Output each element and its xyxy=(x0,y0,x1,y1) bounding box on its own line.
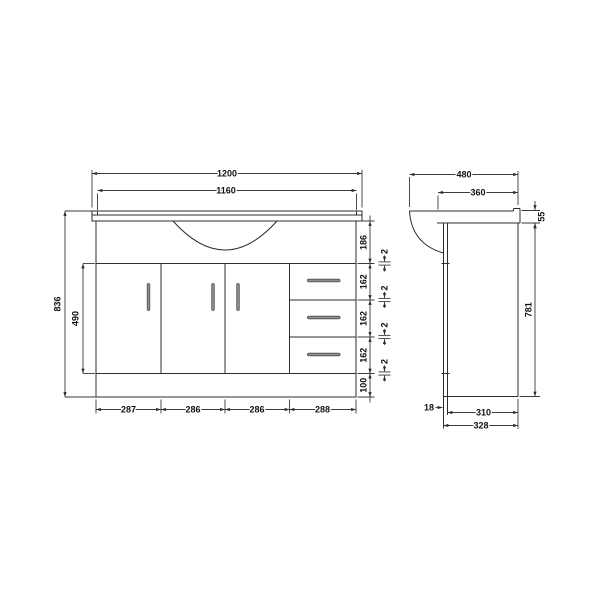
dim-label-cabinet-height: 781 xyxy=(524,302,534,317)
dim-label-countertop-width: 1200 xyxy=(217,169,237,179)
dim-gap-2mm: 2 2 2 2 xyxy=(379,249,391,382)
dim-front-right: 186 162 162 162 100 2 2 2 xyxy=(358,216,391,403)
dim-label-base-depth: 328 xyxy=(473,421,488,431)
door-handle-icon xyxy=(237,284,240,311)
dim-front-left: 836 490 xyxy=(53,211,97,397)
dim-label-worktop-height: 55 xyxy=(537,212,547,222)
dim-label-gap: 2 xyxy=(380,359,390,364)
technical-drawing: 1200 1160 836 490 xyxy=(0,0,602,602)
dim-label-gap: 2 xyxy=(380,322,390,327)
door-handle-icon xyxy=(212,284,215,311)
drawing-sheet: 1200 1160 836 490 xyxy=(0,0,602,602)
drawer-handle-icon xyxy=(308,353,341,356)
front-view: 1200 1160 836 490 xyxy=(53,169,391,415)
front-countertop xyxy=(92,211,362,221)
side-view: 480 360 55 781 18 310 328 xyxy=(410,170,547,431)
dim-label-drawer-2: 162 xyxy=(359,311,369,326)
dim-label-recess-depth: 310 xyxy=(476,408,491,418)
dim-label-top-rail: 186 xyxy=(359,235,369,250)
dim-label-gap: 2 xyxy=(380,285,390,290)
drawer-handle-icon xyxy=(308,279,341,282)
dim-label-total-height: 836 xyxy=(53,296,63,311)
dim-label-worktop-depth: 360 xyxy=(470,188,485,198)
dim-side-right: 55 781 xyxy=(520,201,547,397)
front-cabinet-body xyxy=(96,221,356,397)
dim-label-overall-depth: 480 xyxy=(456,170,471,180)
side-basin-curve xyxy=(410,211,444,253)
dim-side-bottom: 18 310 328 xyxy=(424,399,518,431)
dim-label-plinth: 100 xyxy=(359,378,369,393)
dim-label-panel-thickness: 18 xyxy=(424,403,434,413)
dim-label-bay-4: 288 xyxy=(315,405,330,415)
dim-side-top: 480 360 xyxy=(410,170,519,210)
dim-front-bottom: 287 286 286 288 xyxy=(96,400,356,415)
dim-label-bay-1: 287 xyxy=(121,405,136,415)
dim-label-bay-3: 286 xyxy=(249,405,264,415)
dim-front-top: 1200 1160 xyxy=(92,169,362,211)
dim-label-gap: 2 xyxy=(380,249,390,254)
dim-label-inner-width: 1160 xyxy=(216,186,236,196)
side-cabinet-body xyxy=(442,223,519,429)
dim-label-drawer-1: 162 xyxy=(359,274,369,289)
side-countertop xyxy=(410,209,521,224)
dim-label-door-height: 490 xyxy=(71,311,81,326)
drawer-handle-icon xyxy=(308,316,341,319)
door-handle-icon xyxy=(147,284,150,311)
dim-label-bay-2: 286 xyxy=(185,405,200,415)
dim-label-drawer-3: 162 xyxy=(359,348,369,363)
